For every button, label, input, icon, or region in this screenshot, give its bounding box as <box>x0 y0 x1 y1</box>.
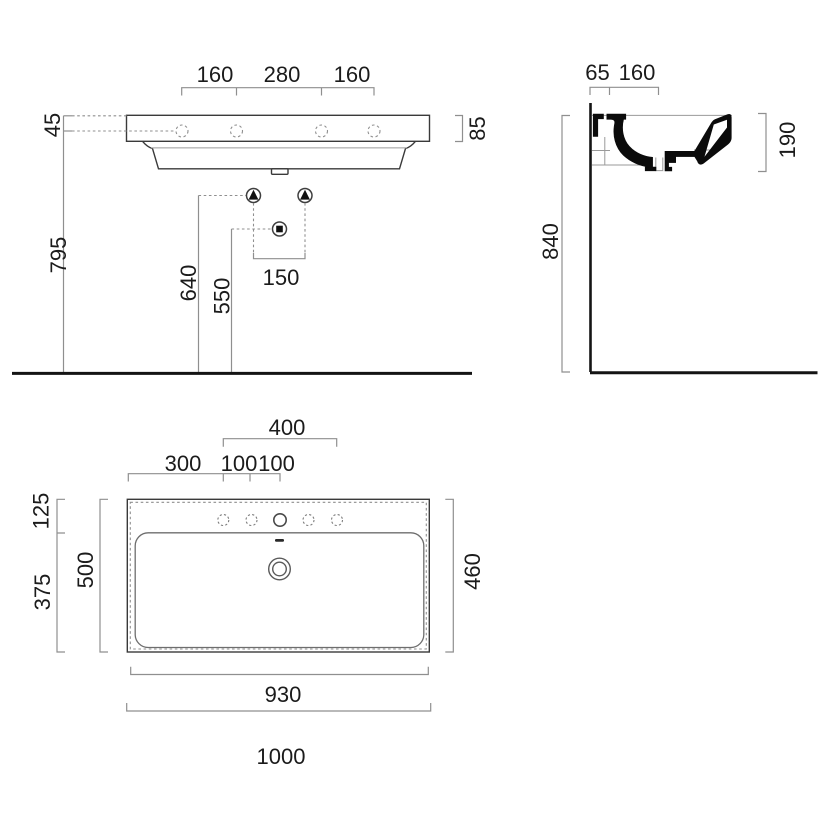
front-basin-taper <box>143 141 416 169</box>
dim-label-rim-height: 85 <box>465 116 490 140</box>
dim-label-total-height: 840 <box>538 223 563 260</box>
dim-label-deck-depth: 160 <box>619 60 656 85</box>
dim-label-floor-to-drain: 550 <box>210 278 235 315</box>
dim-label-tap-left: 160 <box>197 62 234 87</box>
dim-label-total-width: 1000 <box>257 744 306 769</box>
dim-label-inner-depth: 460 <box>460 553 485 590</box>
dim-label-floor-to-fixing: 640 <box>176 265 201 302</box>
dim-label-rim-top: 45 <box>40 113 65 137</box>
dim-bracket-190 <box>758 114 766 172</box>
dim-label-tap-span: 400 <box>269 415 306 440</box>
dim-label-front-depth: 375 <box>30 574 55 611</box>
fixing-point-symbol-left <box>247 189 261 203</box>
dim-label-bowl-depth: 500 <box>73 552 98 589</box>
plan-view: 400 300 100 100 125 375 500 460 930 1 <box>29 415 486 769</box>
dim-label-tap-gap-1: 100 <box>221 451 258 476</box>
dim-label-back-ledge: 125 <box>29 493 54 530</box>
fixing-point-symbol-right <box>298 189 312 203</box>
section-wall-bracket <box>593 114 603 137</box>
dim-bracket-125-375 <box>57 499 65 652</box>
dim-label-tap-right: 160 <box>334 62 371 87</box>
dim-bracket-930 <box>131 667 429 675</box>
dim-label-tap-gap-2: 100 <box>258 451 295 476</box>
technical-drawing-washbasin: 160 280 160 45 795 85 640 550 <box>0 0 830 830</box>
dim-bracket-150 <box>254 253 306 259</box>
side-drain-outline <box>656 158 663 171</box>
section-right-rim <box>694 114 731 165</box>
dim-label-front-height: 190 <box>775 122 800 159</box>
front-rim-band <box>127 115 430 141</box>
front-right-dim-bracket <box>455 116 463 142</box>
section-bottom-and-drain-right <box>665 151 694 171</box>
square-icon <box>276 226 283 233</box>
side-view: 65 160 840 190 <box>538 60 818 373</box>
dim-label-wall-offset: 65 <box>585 60 609 85</box>
dim-bracket-460 <box>445 499 453 652</box>
dim-label-floor-to-rim: 795 <box>46 237 71 274</box>
tap-hole-plan-center <box>274 514 286 526</box>
overflow-slot <box>275 539 284 542</box>
dim-label-tap-center: 280 <box>264 62 301 87</box>
drawing-svg: 160 280 160 45 795 85 640 550 <box>0 0 830 830</box>
front-drain-stub <box>272 169 289 175</box>
dim-label-left-to-tap: 300 <box>165 451 202 476</box>
dim-label-inner-width: 930 <box>265 682 302 707</box>
front-top-dim-bracket <box>182 88 374 96</box>
dim-bracket-840 <box>562 116 570 373</box>
dim-label-fixing-spacing: 150 <box>263 265 300 290</box>
section-left-wall-and-drain <box>607 114 656 171</box>
drain-point-symbol <box>273 222 287 236</box>
side-top-dim-bracket <box>590 87 659 95</box>
front-view: 160 280 160 45 795 85 640 550 <box>12 62 490 373</box>
dim-bracket-500 <box>100 499 108 652</box>
